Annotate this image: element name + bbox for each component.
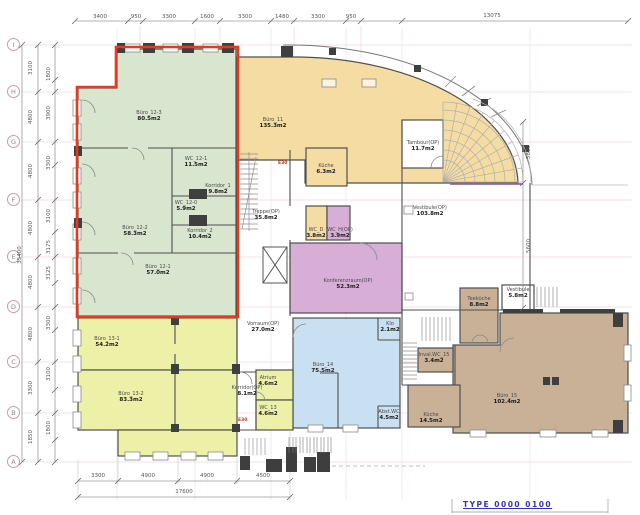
elevator-shaft <box>263 247 287 283</box>
room-shape-buero-13-1 <box>78 318 237 370</box>
stair-right-2 <box>403 343 417 379</box>
floor-plan-page: IHGFEDCBABüro_12-380.5m2WC_12-111.5m2Kor… <box>0 0 640 515</box>
stair-right-1 <box>422 317 450 341</box>
room-shape-wc-d <box>306 206 327 240</box>
room-shape-tambour <box>402 120 443 168</box>
room-shape-kueche-11 <box>306 148 347 186</box>
document-link[interactable]: TYPE 0000 0100 <box>463 500 552 509</box>
site-details <box>240 437 608 513</box>
room-shape-bueros-12 <box>78 49 236 316</box>
floor-plan-canvas <box>0 0 640 515</box>
room-shape-konferenzraum <box>290 243 402 313</box>
room-shape-wc-h <box>327 206 350 240</box>
room-shape-kueche-15 <box>408 385 460 427</box>
stair-treppe-op <box>240 152 258 231</box>
room-shape-buero-13-2 <box>78 370 237 430</box>
room-shape-atrium <box>256 370 293 400</box>
room-shape-wc-13 <box>256 400 293 430</box>
stair-right-3 <box>537 287 557 307</box>
room-shape-vestibule-small <box>502 285 534 310</box>
room-shape-inval-wc <box>418 348 453 372</box>
room-shape-buero-14 <box>293 318 400 428</box>
room-shape-buero-11 <box>237 57 518 183</box>
